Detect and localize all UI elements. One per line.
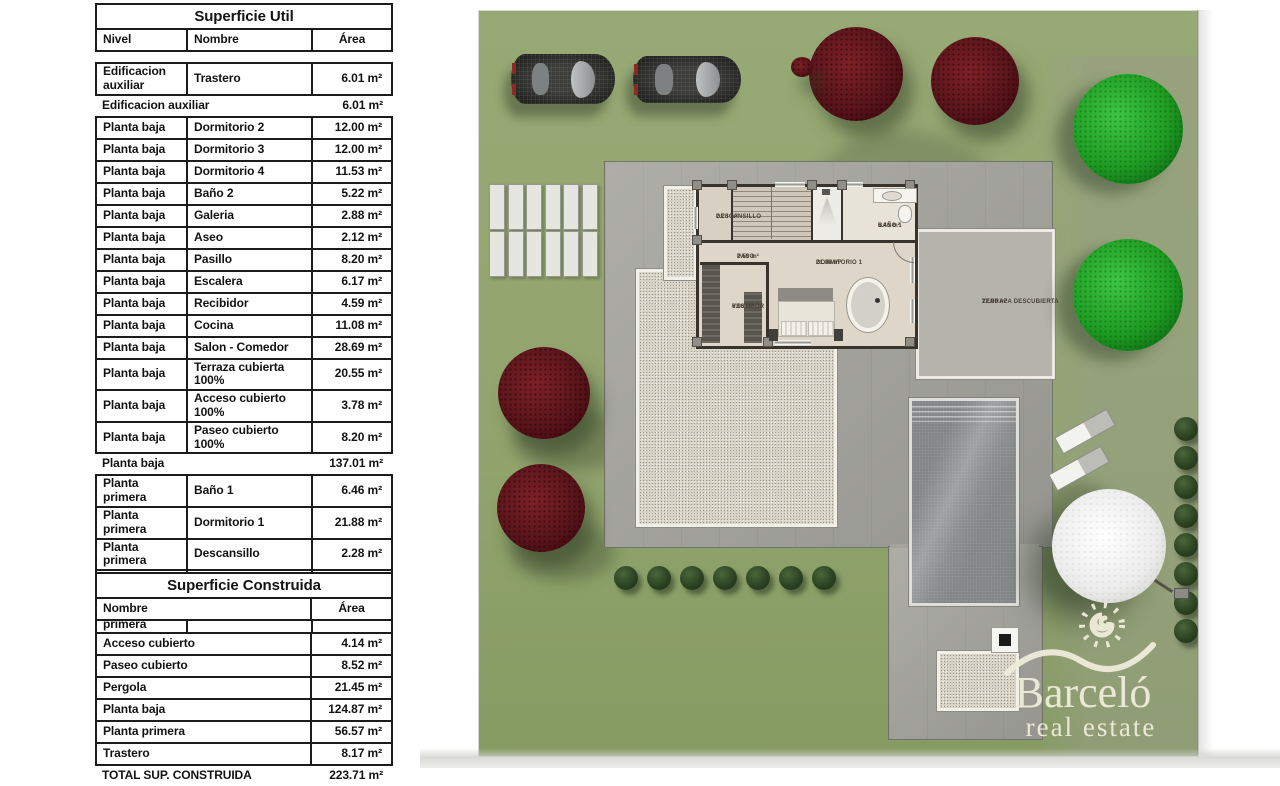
window [775,182,805,187]
bush [812,566,836,590]
cell-nivel: Planta baja [96,161,187,183]
cell-nombre: Escalera [187,271,312,293]
red-tree [931,37,1019,125]
pergola-slab [489,184,505,230]
table-row: Planta baja Cocina 11.08 m² [96,315,392,337]
col-area: Área [311,598,392,620]
cell-area: 6.46 m² [312,475,392,507]
room-area: 6.96 m² [732,304,754,312]
cell-nombre: Dormitorio 1 [187,507,312,539]
subtotal-row: Edificacion auxiliar 6.01 m² [96,95,392,117]
table-row: Planta baja Baño 2 5.22 m² [96,183,392,205]
total-area: 223.71 m² [311,765,392,786]
car-taillight [512,84,516,95]
room-area: 2.28 m² [716,214,738,222]
table-row: Planta baja Pasillo 8.20 m² [96,249,392,271]
room-area: 2.50 m² [737,254,759,262]
room-area: 22.00 m² [982,299,1008,307]
cell-area: 6.17 m² [312,271,392,293]
table-row: Planta primera 56.57 m² [96,721,392,743]
table-row: Planta primera Baño 1 6.46 m² [96,475,392,507]
pergola-slab [563,184,579,230]
table-row: Planta baja Aseo 2.12 m² [96,227,392,249]
cell-nivel: Edificacion auxiliar [96,63,187,95]
bathtub-faucet [875,298,880,303]
cell-area: 21.88 m² [312,507,392,539]
cell-area: 2.12 m² [312,227,392,249]
nightstand [834,329,843,341]
room-area: 6.46 m² [878,223,900,231]
cell-nombre: Planta baja [96,699,311,721]
pergola-slab [582,184,598,230]
pilaster [692,235,702,245]
cell-area: 12.00 m² [312,117,392,139]
wall [700,240,915,243]
cell-nivel: Planta baja [96,390,187,422]
cell-nivel: Planta baja [96,422,187,454]
cell-nivel: Planta primera [96,539,187,571]
window [845,182,863,187]
car-rear-window [532,63,550,95]
wall [841,187,843,240]
parasol [1052,489,1166,603]
green-tree [1073,239,1183,351]
watermark-tagline: real estate [1026,712,1157,741]
subtotal-label: Edificacion auxiliar [96,95,312,117]
cell-area: 6.01 m² [312,63,392,95]
car-taillight [634,64,638,74]
sink [882,191,902,201]
bush [713,566,737,590]
gravel-strip [664,186,697,280]
pilaster [905,337,915,347]
subtotal-row: Planta baja 137.01 m² [96,453,392,475]
room-area: 21.88 m² [816,260,842,268]
shower-head [822,189,830,195]
barcelo-watermark: Barceló real estate [999,589,1179,741]
bush [746,566,770,590]
table-title: Superficie Util [96,4,392,29]
cell-nombre: Cocina [187,315,312,337]
car-windshield [696,62,721,97]
cell-nivel: Planta baja [96,205,187,227]
toilet [898,205,912,223]
cell-nombre: Pergola [96,677,311,699]
cell-nombre: Trastero [187,63,312,95]
cell-nombre: Baño 1 [187,475,312,507]
column-header-row: Nombre Área [96,598,392,620]
watermark-brand: Barceló [1015,668,1152,717]
window [775,340,811,345]
car [633,56,741,103]
cell-nivel: Planta baja [96,139,187,161]
table-row: Planta primera Descansillo 2.28 m² [96,539,392,571]
bathtub [847,278,889,332]
wardrobe [702,265,720,343]
pilaster [837,180,847,190]
table-row: Planta baja Dormitorio 4 11.53 m² [96,161,392,183]
car-taillight [512,63,516,74]
pilaster [727,180,737,190]
cell-area: 5.22 m² [312,183,392,205]
pergola-slab [582,231,598,277]
cell-area: 2.88 m² [312,205,392,227]
table-row: Pergola 21.45 m² [96,677,392,699]
cell-nombre: Galeria [187,205,312,227]
superficie-construida-rows: Acceso cubierto 4.14 m² Paseo cubierto 8… [96,633,392,786]
cell-area: 4.14 m² [311,633,392,655]
cell-area: 3.78 m² [312,390,392,422]
cell-nivel: Planta baja [96,337,187,359]
table-row: Planta baja Galeria 2.88 m² [96,205,392,227]
table-row: Planta baja Salon - Comedor 28.69 m² [96,337,392,359]
table-row: Planta baja Dormitorio 2 12.00 m² [96,117,392,139]
cell-nombre: Trastero [96,743,311,765]
table-row: Planta primera Dormitorio 1 21.88 m² [96,507,392,539]
table-row: Planta baja Paseo cubierto 100% 8.20 m² [96,422,392,454]
cell-area: 8.20 m² [312,249,392,271]
table-title: Superficie Construida [96,573,392,598]
pergola-slab [508,231,524,277]
superficie-util-header: Superficie Util Nivel Nombre Área [95,3,393,52]
bush [680,566,704,590]
car-rear-window [655,64,673,94]
cell-nivel: Planta baja [96,249,187,271]
table-row: Trastero 8.17 m² [96,743,392,765]
table-row: Planta baja Terraza cubierta 100% 20.55 … [96,359,392,391]
pergola-slab [545,231,561,277]
pergola-slab [563,231,579,277]
pergola-slab [526,231,542,277]
cell-area: 8.52 m² [311,655,392,677]
bush [1174,504,1198,528]
pilaster [807,180,817,190]
cell-nivel: Planta baja [96,359,187,391]
total-label: TOTAL SUP. CONSTRUIDA [96,765,311,786]
pillow [781,321,807,336]
table-row: Planta baja Escalera 6.17 m² [96,271,392,293]
table-row: Planta baja Acceso cubierto 100% 3.78 m² [96,390,392,422]
red-tree [809,27,903,121]
table-row: Acceso cubierto 4.14 m² [96,633,392,655]
wardrobe [744,292,762,343]
cell-area: 56.57 m² [311,721,392,743]
wall [811,187,813,240]
table-row: Planta baja Recibidor 4.59 m² [96,293,392,315]
cell-nombre: Paseo cubierto [96,655,311,677]
bush [1174,562,1198,586]
pool-steps [912,406,1016,422]
cell-area: 2.28 m² [312,539,392,571]
cell-nivel: Planta baja [96,117,187,139]
subtotal-area: 137.01 m² [312,453,392,475]
cell-nivel: Planta baja [96,227,187,249]
swimming-pool [909,398,1019,606]
table-row: Planta baja Dormitorio 3 12.00 m² [96,139,392,161]
bush [779,566,803,590]
subtotal-label: Planta baja [96,453,312,475]
window [910,299,915,323]
cell-nombre: Baño 2 [187,183,312,205]
nightstand [769,329,778,341]
bush [1174,417,1198,441]
cell-area: 8.20 m² [312,422,392,454]
pergola-slab [545,184,561,230]
cell-area: 11.08 m² [312,315,392,337]
cell-nivel: Planta baja [96,183,187,205]
cell-area: 28.69 m² [312,337,392,359]
cell-nombre: Descansillo [187,539,312,571]
cell-nivel: Planta baja [96,271,187,293]
cell-area: 20.55 m² [312,359,392,391]
cell-area: 21.45 m² [311,677,392,699]
cell-area: 4.59 m² [312,293,392,315]
cell-nombre: Acceso cubierto 100% [187,390,312,422]
pergola-slab [489,231,505,277]
cell-area: 12.00 m² [312,139,392,161]
cell-nivel: Planta primera [96,475,187,507]
red-tree [497,464,585,552]
red-tree [498,347,590,439]
cell-nombre: Terraza cubierta 100% [187,359,312,391]
pergola-slab [526,184,542,230]
cell-nombre: Aseo [187,227,312,249]
table-row: Paseo cubierto 8.52 m² [96,655,392,677]
cell-area: 124.87 m² [311,699,392,721]
subtotal-area: 6.01 m² [312,95,392,117]
pilaster [692,337,702,347]
cell-nivel: Planta baja [96,293,187,315]
pergola-slab [508,184,524,230]
col-nivel: Nivel [96,29,187,51]
column-header-row: Nivel Nombre Área [96,29,392,51]
cell-area: 8.17 m² [311,743,392,765]
bush [614,566,638,590]
cell-nombre: Planta primera [96,721,311,743]
green-tree [1073,74,1183,184]
cell-nombre: Salon - Comedor [187,337,312,359]
window [693,207,698,229]
stair-divider [771,187,772,239]
site-plan: DESCANSILLO 2.28 m² PASO 2.50 m² BAÑO 1 … [478,10,1199,757]
car-windshield [571,61,595,98]
cell-nombre: Dormitorio 4 [187,161,312,183]
col-nombre: Nombre [187,29,312,51]
bed-footboard [778,288,833,301]
pilaster [692,180,702,190]
cell-nombre: Recibidor [187,293,312,315]
total-row: TOTAL SUP. CONSTRUIDA 223.71 m² [96,765,392,786]
col-area: Área [312,29,392,51]
bush [1174,446,1198,470]
superficie-construida-table: Acceso cubierto 4.14 m² Paseo cubierto 8… [95,632,393,786]
table-row: Edificacion auxiliar Trastero 6.01 m² [96,63,392,95]
cell-nivel: Planta baja [96,315,187,337]
car [511,54,615,104]
page-edge-shadow [1197,10,1213,755]
sun-spiral-icon [1092,615,1112,635]
cell-nombre: Pasillo [187,249,312,271]
cell-nombre: Paseo cubierto 100% [187,422,312,454]
page-bottom-shadow [420,748,1280,768]
bush [1174,533,1198,557]
red-bush [791,57,813,77]
cell-nombre: Dormitorio 2 [187,117,312,139]
bush [1174,475,1198,499]
car-taillight [634,84,638,94]
cell-nivel: Planta primera [96,507,187,539]
superficie-construida-header: Superficie Construida Nombre Área [95,572,393,621]
cell-area: 11.53 m² [312,161,392,183]
table-row: Planta baja 124.87 m² [96,699,392,721]
bush [647,566,671,590]
cell-nombre: Acceso cubierto [96,633,311,655]
pillow [808,321,834,336]
cell-nombre: Dormitorio 3 [187,139,312,161]
col-nombre: Nombre [96,598,311,620]
